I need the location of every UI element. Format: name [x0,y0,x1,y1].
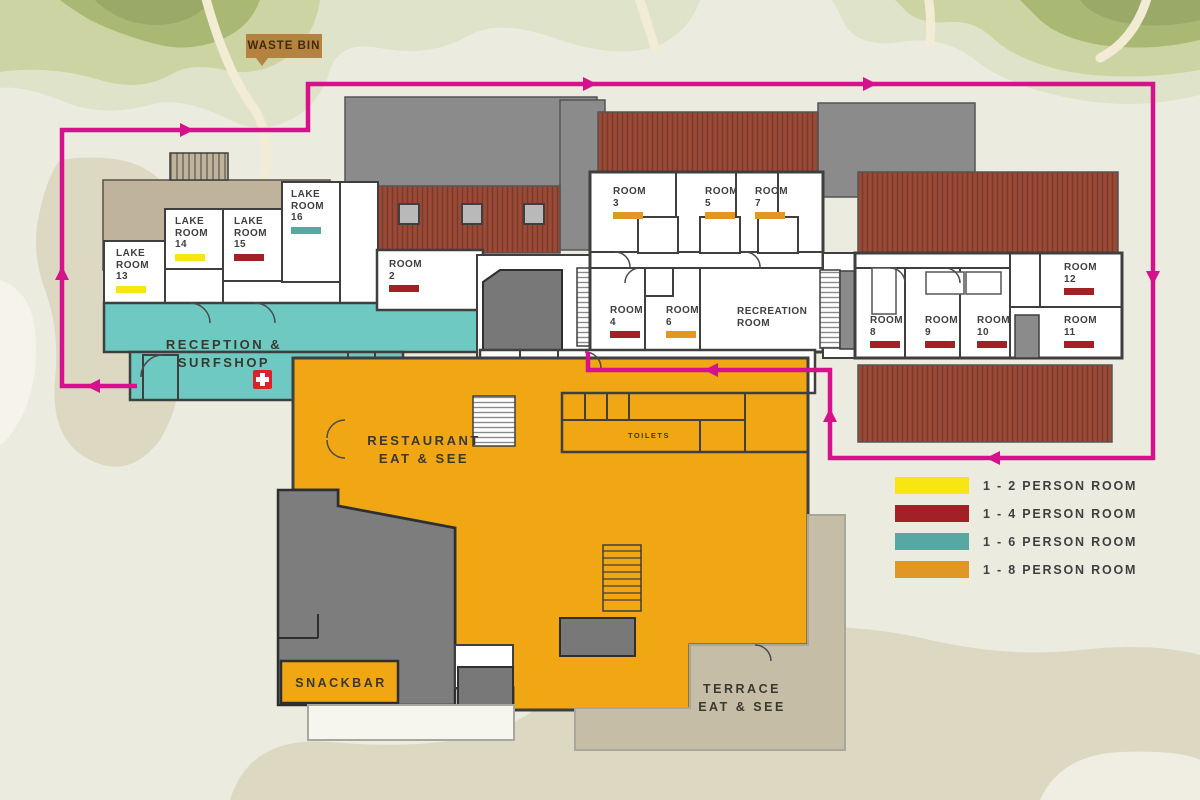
snackbar-floor [281,661,398,703]
lake-room-15-floor [223,209,283,281]
room-2-floor [377,250,483,310]
right-wing-building [820,253,1122,358]
staircase [820,270,840,348]
red-roof-right-bottom [858,365,1112,442]
main-rooms-building [590,172,823,352]
lake-room-13-floor [104,241,166,303]
lake-room-16-floor [282,182,340,282]
resort-floor-plan: WASTE BIN RECEPTION & SURFSHOP RESTAURAN… [0,0,1200,800]
staircase [473,396,515,446]
red-roof-right-top [858,172,1118,255]
pergola [170,153,228,180]
central-annex [477,255,605,360]
lake-room-14-floor [165,209,223,269]
floor-plan-drawing [0,0,1200,800]
